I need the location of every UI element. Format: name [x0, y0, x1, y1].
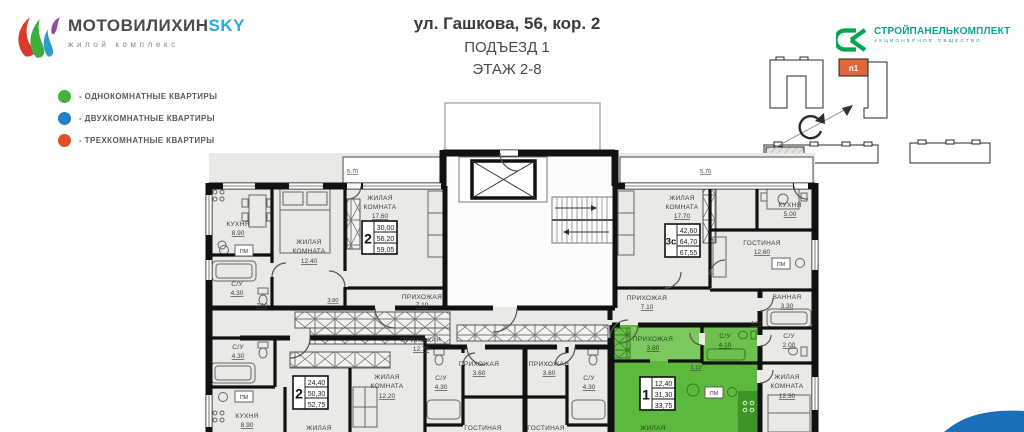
svg-text:КУХНЯ: КУХНЯ [226, 221, 249, 228]
svg-text:ЖИЛАЯ: ЖИЛАЯ [640, 425, 665, 432]
svg-text:КОМНАТА: КОМНАТА [293, 248, 326, 255]
pm-label: ПМ [710, 391, 719, 397]
svg-text:4.10: 4.10 [719, 342, 732, 349]
svg-text:ГОСТИНАЯ: ГОСТИНАЯ [743, 240, 780, 247]
svg-text:КУХНЯ: КУХНЯ [235, 413, 258, 420]
svg-text:3.60: 3.60 [543, 370, 556, 377]
svg-text:ПРИХОЖАЯ: ПРИХОЖАЯ [627, 295, 667, 302]
pm-label: ПМ [240, 395, 249, 401]
flame-logo-icon [12, 8, 62, 62]
svg-text:ПРИХОЖАЯ: ПРИХОЖАЯ [633, 336, 673, 343]
brand-logo: МОТОВИЛИХИНSKY жилой комплекс [12, 8, 245, 62]
svg-text:ГОСТИНАЯ: ГОСТИНАЯ [464, 425, 501, 432]
svg-text:2: 2 [364, 231, 372, 247]
entrance-canopy [445, 103, 600, 152]
svg-text:ЖИЛАЯ: ЖИЛАЯ [774, 374, 799, 381]
svg-text:С/У: С/У [783, 333, 795, 340]
apartment-stamp-3c[interactable]: 3с 42,60 64,70 67,55 [665, 224, 700, 257]
pm-label: ПМ [777, 262, 786, 268]
svg-text:7.10: 7.10 [641, 304, 654, 311]
svg-text:С/У: С/У [583, 375, 595, 382]
svg-text:С/У: С/У [232, 344, 244, 351]
pm-label: ПМ [240, 249, 249, 255]
svg-text:64,70: 64,70 [680, 239, 698, 246]
svg-text:ПРИХОЖАЯ: ПРИХОЖАЯ [459, 361, 499, 368]
floor-plan: КУХНЯ8.90 С/У4.30 ЖИЛАЯКОМНАТА12.40 ЖИЛА… [195, 95, 825, 432]
room-label-room-cut-green: ЖИЛАЯ [640, 425, 665, 432]
svg-text:24,40: 24,40 [308, 380, 326, 387]
dim-380: 3.80 [327, 298, 338, 304]
svg-text:8.90: 8.90 [241, 422, 254, 429]
svg-text:3.60: 3.60 [473, 370, 486, 377]
legend-item-3room: - ТРЕХКОМНАТНЫЕ КВАРТИРЫ [58, 134, 217, 147]
svg-text:52,75: 52,75 [308, 402, 326, 409]
balcony-right [620, 157, 813, 186]
svg-text:12,40: 12,40 [655, 381, 673, 388]
green-dot-icon [58, 90, 71, 103]
svg-text:30,00: 30,00 [377, 225, 395, 232]
svg-text:4.30: 4.30 [435, 384, 448, 391]
svg-text:33,75: 33,75 [655, 403, 673, 410]
svg-text:КОМНАТА: КОМНАТА [666, 204, 699, 211]
dim-balcony-left: 5.70 [347, 169, 358, 175]
svg-text:7.10: 7.10 [416, 302, 429, 309]
blue-dot-icon [58, 112, 71, 125]
svg-text:ЖИЛАЯ: ЖИЛАЯ [306, 425, 331, 432]
svg-text:12.60: 12.60 [754, 249, 771, 256]
svg-text:ЖИЛАЯ: ЖИЛАЯ [367, 195, 392, 202]
svg-text:17.60: 17.60 [372, 213, 389, 220]
svg-text:ПРИХОЖАЯ: ПРИХОЖАЯ [529, 361, 569, 368]
dim-balcony-right: 5.70 [700, 169, 711, 175]
brand-subtitle: жилой комплекс [68, 40, 245, 49]
dim-210b: 2.10 [690, 365, 701, 371]
page: МОТОВИЛИХИНSKY жилой комплекс - ОДНОКОМН… [0, 0, 1024, 432]
svg-text:5.00: 5.00 [784, 211, 797, 218]
brand-name: МОТОВИЛИХИНSKY [68, 16, 245, 36]
svg-text:ЖИЛАЯ: ЖИЛАЯ [374, 374, 399, 381]
entrance-label: ПОДЪЕЗД 1 [357, 39, 657, 56]
blue-wave-decoration [938, 402, 1024, 432]
svg-text:12.70: 12.70 [413, 346, 430, 353]
page-title: ул. Гашкова, 56, кор. 2 ПОДЪЕЗД 1 ЭТАЖ 2… [357, 14, 657, 78]
svg-text:17.70: 17.70 [674, 213, 691, 220]
dim-470: 4.70 [750, 321, 761, 327]
svg-text:1: 1 [642, 387, 650, 403]
red-dot-icon [58, 134, 71, 147]
svg-text:4.30: 4.30 [231, 290, 244, 297]
svg-text:2: 2 [295, 386, 303, 402]
arrowhead-icon [842, 105, 853, 116]
svg-text:ГОСТИНАЯ: ГОСТИНАЯ [527, 425, 564, 432]
svg-text:3.80: 3.80 [647, 345, 660, 352]
apartment-stamp-1[interactable]: 1 12,40 31,30 33,75 [640, 377, 675, 410]
svg-text:С/У: С/У [435, 375, 447, 382]
room-label-living-a: ГОСТИНАЯ [464, 425, 501, 432]
svg-text:3.30: 3.30 [781, 303, 794, 310]
svg-text:С/У: С/У [719, 333, 731, 340]
svg-text:12.30: 12.30 [779, 393, 796, 400]
svg-text:50,30: 50,30 [308, 391, 326, 398]
svg-text:4.30: 4.30 [232, 353, 245, 360]
svg-text:12.20: 12.20 [379, 393, 396, 400]
svg-text:42,60: 42,60 [680, 228, 698, 235]
floor-label: ЭТАЖ 2-8 [357, 61, 657, 78]
svg-text:ПРИХОЖАЯ: ПРИХОЖАЯ [402, 294, 442, 301]
svg-text:КУХНЯ: КУХНЯ [778, 202, 801, 209]
svg-text:КОМНАТА: КОМНАТА [771, 383, 804, 390]
svg-text:4.30: 4.30 [583, 384, 596, 391]
apartment-stamp-2a[interactable]: 2 30,00 56,20 59,05 [362, 221, 397, 254]
svg-text:2.00: 2.00 [783, 342, 796, 349]
legend-item-1room: - ОДНОКОМНАТНЫЕ КВАРТИРЫ [58, 90, 217, 103]
svg-text:8.90: 8.90 [232, 230, 245, 237]
svg-text:59,05: 59,05 [377, 247, 395, 254]
svg-text:ЖИЛАЯ: ЖИЛАЯ [669, 195, 694, 202]
svg-text:КОМНАТА: КОМНАТА [364, 204, 397, 211]
legend: - ОДНОКОМНАТНЫЕ КВАРТИРЫ - ДВУХКОМНАТНЫЕ… [58, 90, 217, 156]
svg-text:КОМНАТА: КОМНАТА [371, 383, 404, 390]
site-highlight-label: п1 [849, 64, 859, 73]
room-label-room-cut-left: ЖИЛАЯ [306, 425, 331, 432]
dim-210a: 2.10 [256, 303, 267, 309]
svg-text:3с: 3с [666, 237, 677, 248]
svg-text:56,20: 56,20 [377, 236, 395, 243]
room-label-living-b: ГОСТИНАЯ [527, 425, 564, 432]
svg-text:31,30: 31,30 [655, 392, 673, 399]
svg-text:67,55: 67,55 [680, 250, 698, 257]
address-title: ул. Гашкова, 56, кор. 2 [357, 14, 657, 34]
developer-name: СТРОЙПАНЕЛЬКОМПЛЕКТ [874, 26, 1010, 37]
developer-type: АКЦИОНЕРНОЕ ОБЩЕСТВО [874, 39, 1010, 44]
svg-text:С/У: С/У [231, 281, 243, 288]
svg-text:ЖИЛАЯ: ЖИЛАЯ [296, 239, 321, 246]
svg-text:ВАННАЯ: ВАННАЯ [773, 294, 802, 301]
legend-item-2room: - ДВУХКОМНАТНЫЕ КВАРТИРЫ [58, 112, 217, 125]
apartment-stamp-2b[interactable]: 2 24,40 50,30 52,75 [293, 376, 328, 409]
site-building-row-right [910, 143, 990, 163]
staircase [552, 197, 613, 243]
svg-text:12.40: 12.40 [301, 258, 318, 265]
svg-text:ПРИХОЖАЯ: ПРИХОЖАЯ [401, 337, 441, 344]
